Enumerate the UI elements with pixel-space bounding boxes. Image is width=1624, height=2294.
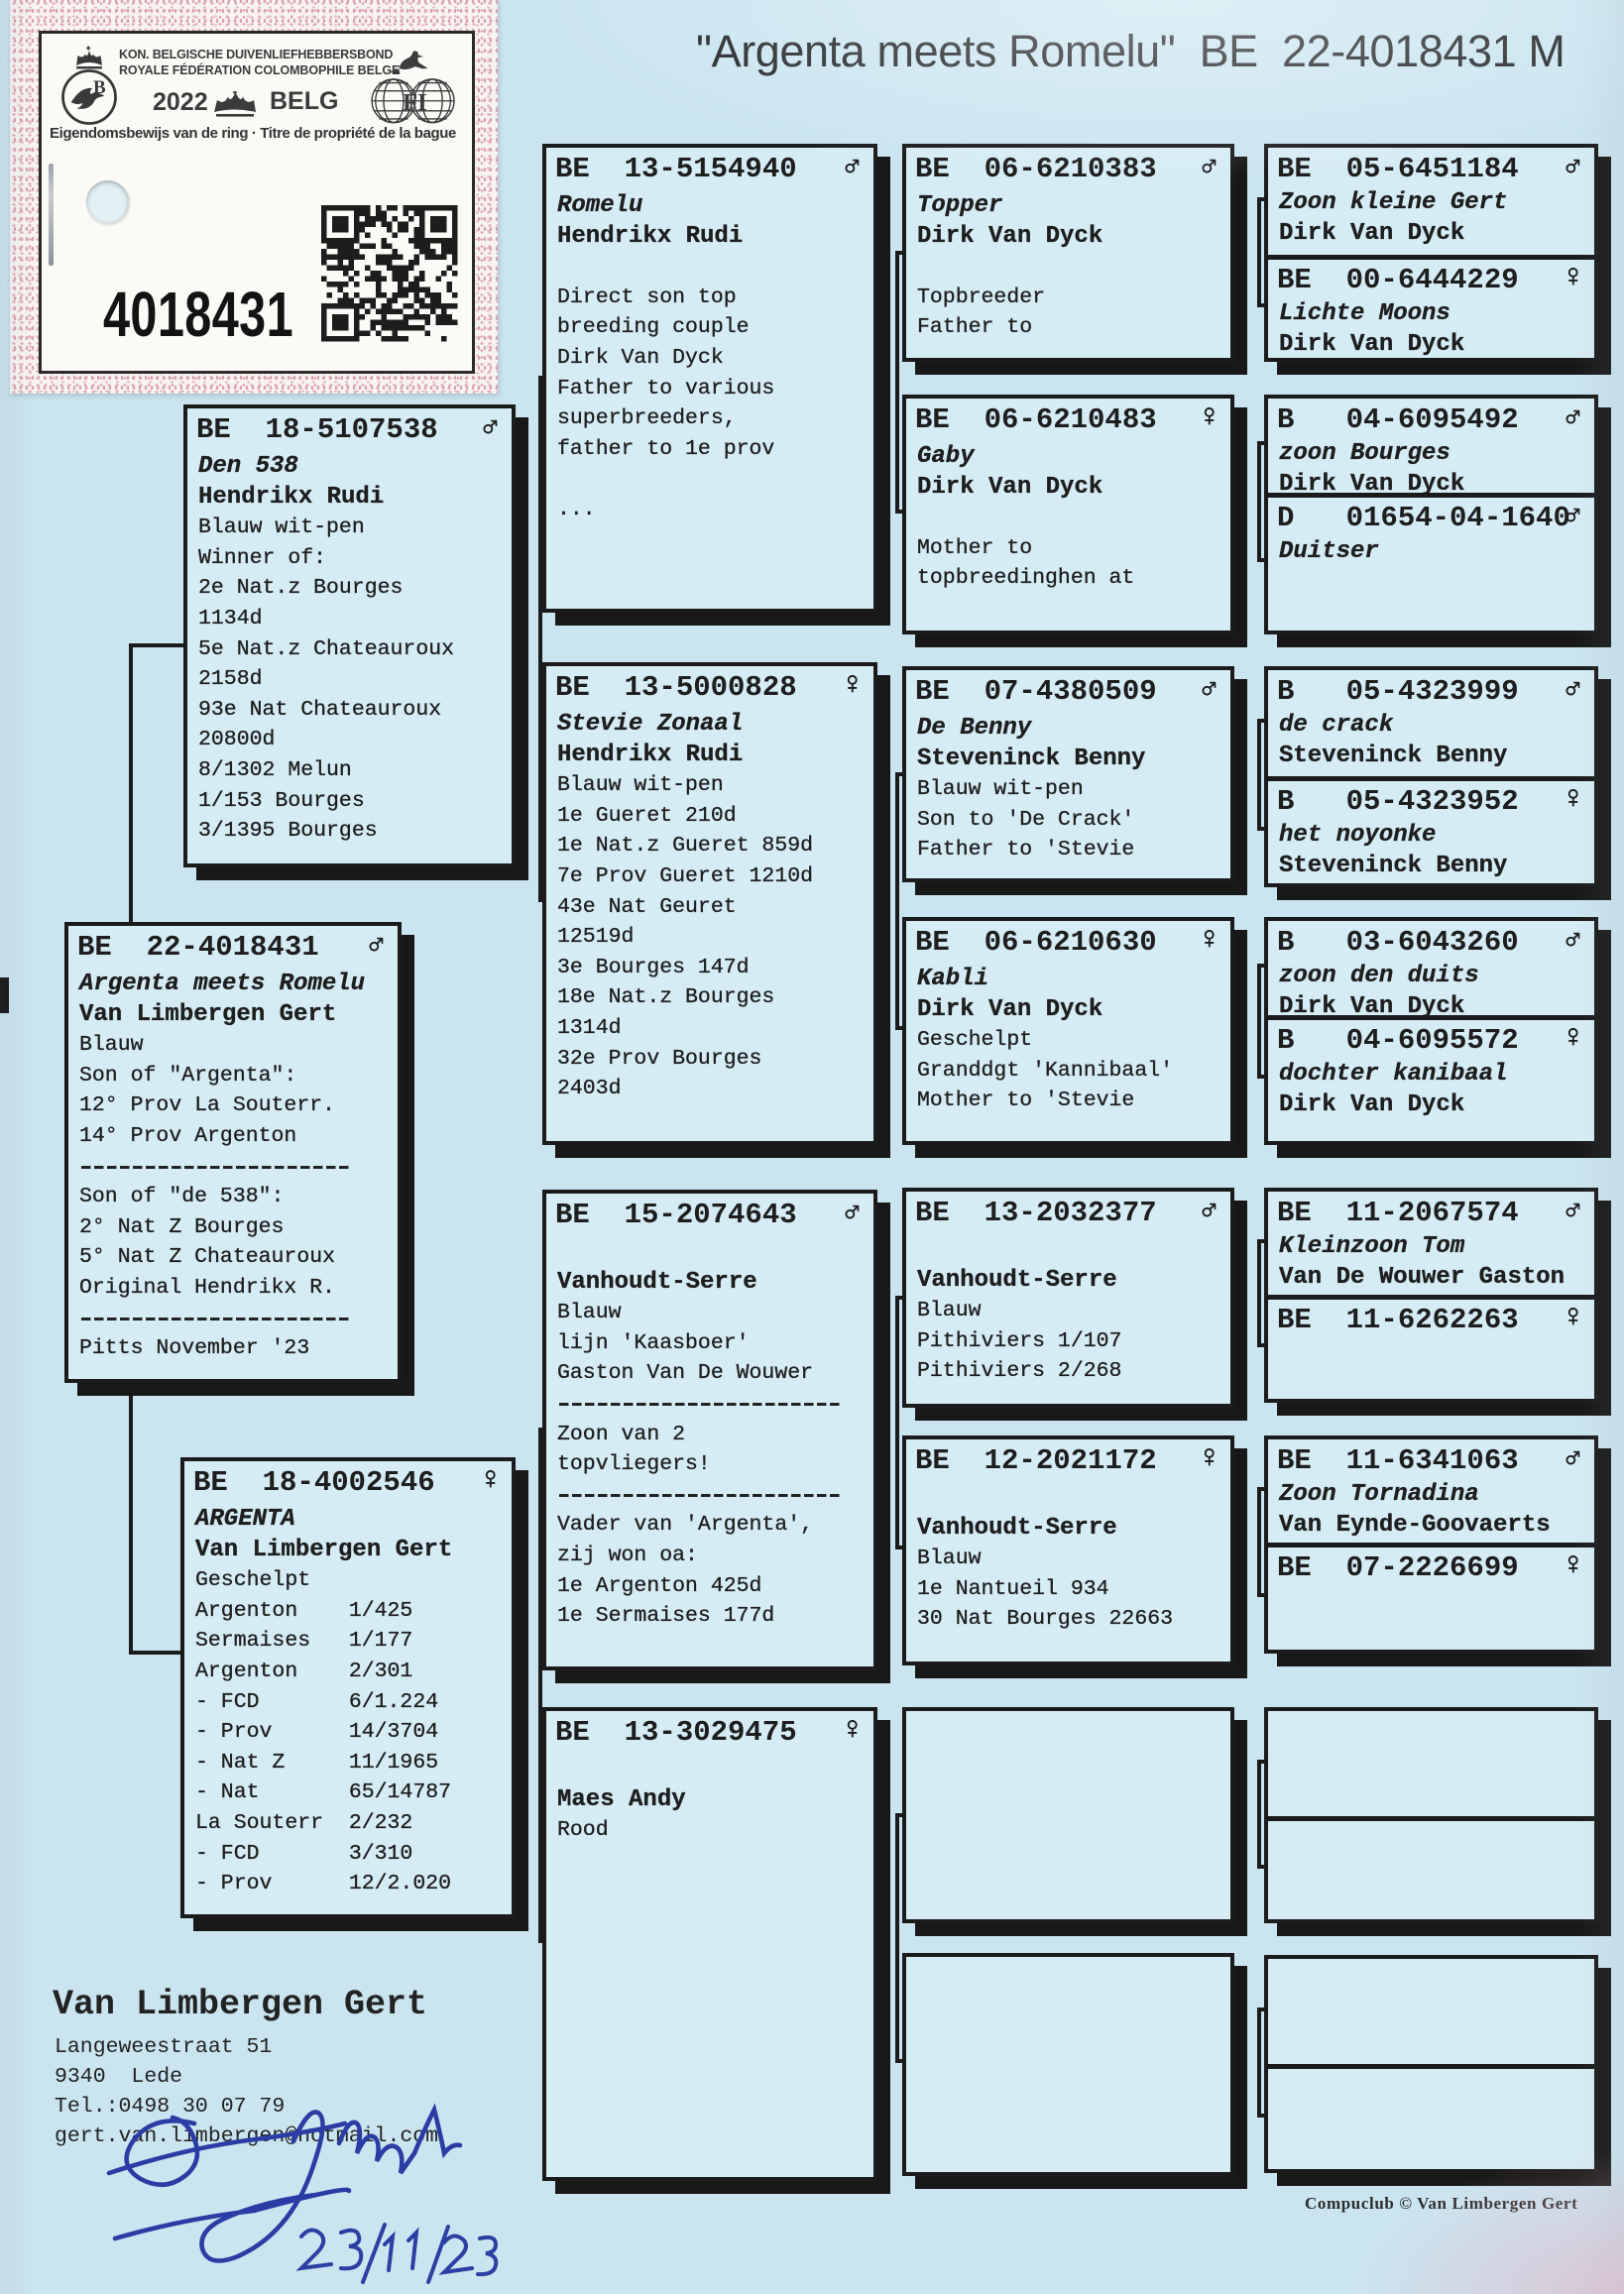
svg-text:FI: FI	[403, 89, 427, 116]
svg-text:B: B	[93, 77, 106, 98]
